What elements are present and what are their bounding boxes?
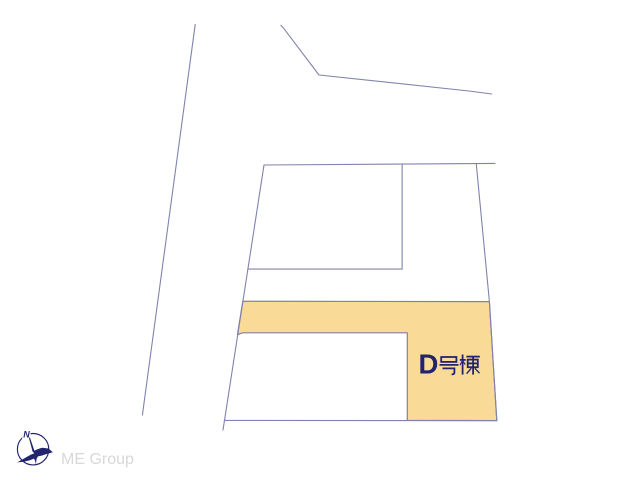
svg-text:D: D xyxy=(419,348,439,379)
